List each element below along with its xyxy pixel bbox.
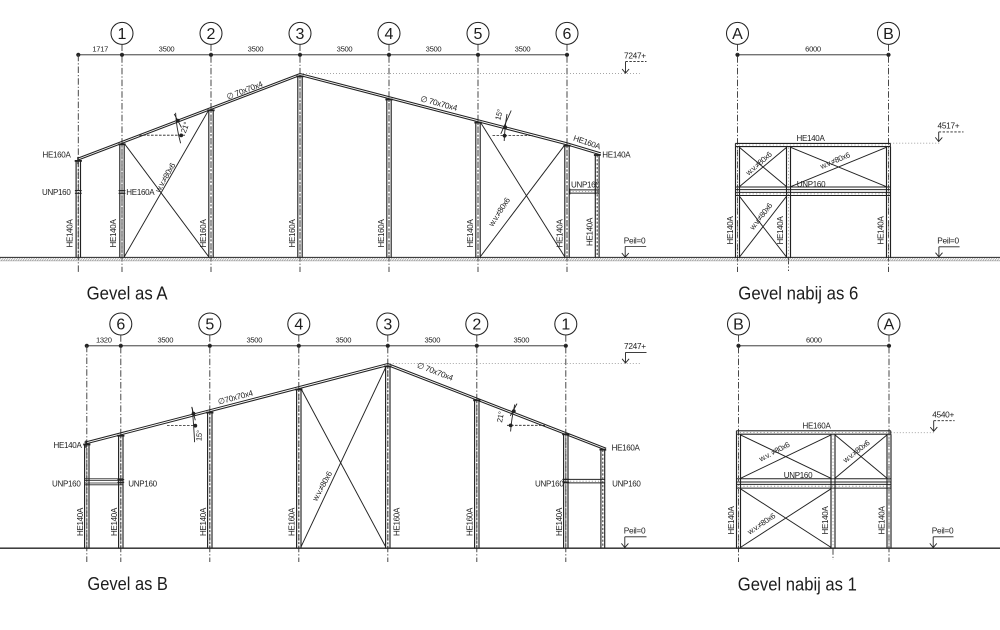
- svg-text:Peil=0: Peil=0: [624, 526, 646, 536]
- svg-text:15°: 15°: [194, 430, 204, 442]
- svg-text:UNP160: UNP160: [784, 471, 813, 480]
- svg-text:HE140A: HE140A: [876, 216, 885, 245]
- svg-text:B: B: [883, 26, 894, 43]
- svg-text:3500: 3500: [159, 45, 175, 54]
- svg-text:HE140A: HE140A: [586, 217, 595, 246]
- svg-text:2: 2: [472, 317, 481, 334]
- svg-text:6000: 6000: [806, 336, 822, 345]
- svg-text:UNP160: UNP160: [128, 480, 157, 489]
- svg-text:HE160A: HE160A: [288, 507, 297, 536]
- svg-text:A: A: [732, 26, 743, 43]
- svg-text:3: 3: [383, 317, 392, 334]
- svg-text:3500: 3500: [513, 336, 529, 345]
- svg-text:21°: 21°: [495, 411, 506, 423]
- svg-text:3500: 3500: [335, 336, 351, 345]
- svg-text:UNP160: UNP160: [571, 180, 600, 189]
- svg-text:4517+: 4517+: [938, 121, 960, 131]
- svg-text:Gevel nabij as 6: Gevel nabij as 6: [738, 283, 858, 303]
- svg-text:4540+: 4540+: [932, 410, 954, 420]
- svg-text:Peil=0: Peil=0: [932, 526, 954, 536]
- svg-text:HE140A: HE140A: [65, 219, 74, 248]
- svg-text:HE160A: HE160A: [612, 444, 641, 453]
- svg-text:6000: 6000: [805, 45, 821, 54]
- svg-text:HE160A: HE160A: [465, 507, 474, 536]
- svg-text:Peil=0: Peil=0: [937, 236, 959, 246]
- svg-text:1320: 1320: [96, 336, 112, 345]
- svg-text:7247+: 7247+: [624, 341, 646, 351]
- svg-text:HE160A: HE160A: [288, 219, 297, 248]
- svg-text:B: B: [733, 317, 744, 334]
- svg-text:HE140A: HE140A: [555, 507, 564, 536]
- svg-text:Gevel nabij as 1: Gevel nabij as 1: [738, 574, 857, 594]
- svg-text:3500: 3500: [246, 336, 262, 345]
- svg-text:UNP160: UNP160: [797, 180, 826, 189]
- svg-text:4: 4: [294, 317, 303, 334]
- svg-text:HE140A: HE140A: [54, 441, 83, 450]
- svg-text:HE140A: HE140A: [726, 216, 735, 245]
- svg-text:6: 6: [563, 26, 572, 43]
- svg-text:HE140A: HE140A: [797, 134, 826, 143]
- svg-text:UNP160: UNP160: [535, 480, 564, 489]
- svg-text:HE140A: HE140A: [466, 219, 475, 248]
- svg-text:5: 5: [474, 26, 483, 43]
- svg-text:Gevel as A: Gevel as A: [87, 283, 168, 303]
- svg-text:HE140A: HE140A: [602, 150, 631, 159]
- svg-text:UNP160: UNP160: [42, 188, 71, 197]
- svg-text:HE140A: HE140A: [877, 506, 886, 535]
- svg-text:HE140A: HE140A: [821, 506, 830, 535]
- svg-text:6: 6: [116, 317, 125, 334]
- svg-text:HE140A: HE140A: [199, 507, 208, 536]
- svg-text:3500: 3500: [337, 45, 353, 54]
- svg-text:UNP160: UNP160: [52, 480, 81, 489]
- svg-text:7247+: 7247+: [624, 50, 646, 60]
- svg-text:5: 5: [205, 317, 214, 334]
- svg-text:A: A: [884, 317, 895, 334]
- svg-text:3500: 3500: [157, 336, 173, 345]
- svg-text:HE160A: HE160A: [199, 219, 208, 248]
- svg-text:3500: 3500: [426, 45, 442, 54]
- svg-text:HE140A: HE140A: [76, 507, 85, 536]
- svg-text:HE140A: HE140A: [110, 507, 119, 536]
- svg-text:Gevel as B: Gevel as B: [87, 574, 167, 594]
- svg-text:3500: 3500: [515, 45, 531, 54]
- svg-text:HE160A: HE160A: [803, 422, 832, 431]
- svg-text:2: 2: [207, 26, 216, 43]
- svg-text:HE140A: HE140A: [776, 216, 785, 245]
- svg-text:HE160A: HE160A: [392, 507, 401, 536]
- svg-text:HE140A: HE140A: [556, 219, 565, 248]
- svg-text:HE160A: HE160A: [377, 219, 386, 248]
- svg-text:Peil=0: Peil=0: [624, 235, 646, 245]
- svg-text:UNP160: UNP160: [612, 480, 641, 489]
- svg-text:3: 3: [296, 26, 305, 43]
- svg-text:3500: 3500: [248, 45, 264, 54]
- svg-text:HE160A: HE160A: [126, 188, 155, 197]
- svg-text:3500: 3500: [424, 336, 440, 345]
- svg-text:HE140A: HE140A: [109, 219, 118, 248]
- svg-text:HE160A: HE160A: [43, 151, 72, 160]
- svg-text:1: 1: [561, 317, 570, 334]
- svg-text:4: 4: [385, 26, 394, 43]
- svg-text:HE140A: HE140A: [727, 506, 736, 535]
- svg-text:1: 1: [118, 26, 127, 43]
- svg-text:1717: 1717: [92, 45, 108, 54]
